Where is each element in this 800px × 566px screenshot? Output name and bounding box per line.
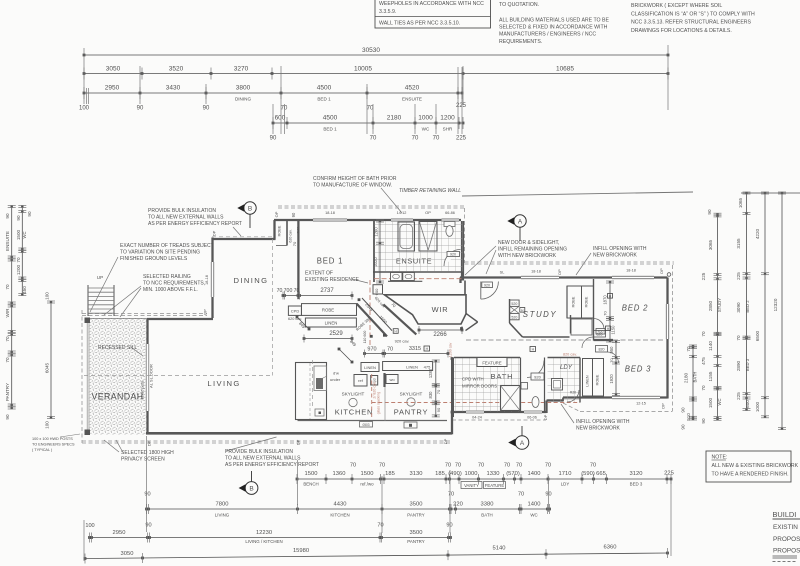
svg-text:70: 70 — [5, 357, 10, 363]
svg-text:1200 cav: 1200 cav — [449, 343, 453, 358]
svg-text:A: A — [520, 440, 525, 447]
svg-text:DP: DP — [659, 268, 664, 274]
svg-text:WEEPHOLES IN ACCORDANCE WITH N: WEEPHOLES IN ACCORDANCE WITH NCC — [379, 1, 484, 7]
svg-text:ROBE: ROBE — [322, 308, 334, 313]
svg-text:BED 1: BED 1 — [317, 257, 344, 266]
svg-text:0503: 0503 — [362, 423, 369, 427]
svg-text:DRAWINGS FOR LOCATIONS & DETAI: DRAWINGS FOR LOCATIONS & DETAILS. — [631, 28, 732, 34]
svg-text:90: 90 — [291, 212, 296, 217]
svg-text:10685: 10685 — [556, 66, 574, 73]
svg-text:TO VARIATION ON SITE PENDING: TO VARIATION ON SITE PENDING — [120, 250, 200, 256]
svg-text:15980: 15980 — [293, 548, 309, 554]
svg-text:225: 225 — [456, 136, 467, 142]
svg-text:1400: 1400 — [528, 502, 541, 508]
svg-text:70: 70 — [603, 311, 608, 316]
svg-text:2180: 2180 — [684, 372, 689, 383]
svg-text:70: 70 — [412, 136, 419, 142]
svg-text:2180: 2180 — [387, 115, 402, 122]
svg-text:INFILL REMAINING OPENING: INFILL REMAINING OPENING — [498, 247, 567, 253]
svg-text:1200: 1200 — [374, 227, 379, 237]
svg-text:STUDY: STUDY — [717, 298, 722, 312]
svg-text:R20: R20 — [570, 391, 576, 395]
svg-text:NOTE:: NOTE: — [712, 455, 728, 461]
svg-text:1500: 1500 — [708, 397, 713, 408]
svg-text:3800: 3800 — [236, 85, 251, 92]
svg-text:04-24: 04-24 — [472, 416, 482, 420]
svg-text:70: 70 — [377, 523, 383, 529]
svg-text:225: 225 — [456, 103, 467, 109]
svg-text:4500: 4500 — [323, 115, 338, 122]
svg-text:2850: 2850 — [708, 300, 713, 311]
svg-text:475: 475 — [701, 357, 706, 365]
svg-text:70: 70 — [350, 463, 356, 469]
svg-text:475: 475 — [424, 365, 431, 370]
svg-text:DP: DP — [557, 269, 562, 275]
svg-text:185: 185 — [385, 471, 395, 477]
svg-text:WC: WC — [530, 513, 537, 518]
svg-text:INFILL OPENING WITH: INFILL OPENING WITH — [593, 246, 647, 252]
svg-text:1920: 1920 — [609, 374, 614, 384]
svg-text:BATH: BATH — [693, 372, 698, 383]
svg-text:PROPOS: PROPOS — [773, 548, 800, 555]
svg-text:830: 830 — [428, 391, 433, 399]
svg-text:70: 70 — [5, 336, 10, 342]
svg-text:2529: 2529 — [329, 331, 343, 337]
svg-text:3090: 3090 — [736, 302, 741, 313]
svg-text:100: 100 — [85, 523, 94, 529]
svg-text:1360: 1360 — [333, 471, 346, 477]
svg-text:DP: DP — [543, 414, 548, 420]
svg-text:BRICKWORK ( EXCEPT WHERE SOIL: BRICKWORK ( EXCEPT WHERE SOIL — [631, 3, 722, 9]
svg-text:18-18: 18-18 — [205, 275, 209, 285]
svg-text:70: 70 — [701, 385, 706, 391]
svg-text:90: 90 — [446, 523, 452, 529]
svg-text:2890: 2890 — [736, 360, 741, 371]
svg-text:14-12: 14-12 — [397, 211, 407, 215]
svg-text:100: 100 — [79, 106, 90, 112]
svg-text:NEW DOOR & SIDELIGHT,: NEW DOOR & SIDELIGHT, — [498, 240, 559, 246]
svg-text:70: 70 — [436, 389, 441, 394]
svg-text:1870: 1870 — [603, 295, 608, 305]
svg-text:EXTENT OF: EXTENT OF — [305, 271, 333, 277]
svg-text:21-30 pass: 21-30 pass — [141, 381, 145, 400]
svg-text:LINEN: LINEN — [406, 365, 418, 370]
svg-text:DINING: DINING — [234, 276, 269, 285]
svg-text:920: 920 — [534, 375, 541, 380]
svg-text:1150: 1150 — [611, 325, 616, 335]
svg-text:520: 520 — [511, 315, 517, 319]
svg-text:185: 185 — [435, 471, 445, 477]
svg-text:3130: 3130 — [410, 471, 423, 477]
svg-text:DP: DP — [147, 440, 152, 446]
svg-text:920: 920 — [484, 284, 490, 288]
svg-text:90: 90 — [144, 492, 150, 498]
svg-text:PROVIDE BULK INSULATION: PROVIDE BULK INSULATION — [225, 449, 293, 455]
svg-text:LIVING: LIVING — [215, 513, 230, 518]
svg-text:R20: R20 — [598, 330, 604, 334]
svg-text:WC: WC — [422, 127, 430, 132]
svg-text:KITCHEN: KITCHEN — [335, 408, 374, 417]
svg-text:ENSUITE: ENSUITE — [402, 97, 422, 102]
svg-text:3050: 3050 — [121, 551, 134, 557]
svg-text:BED 1: BED 1 — [317, 97, 331, 102]
svg-text:STUDY: STUDY — [523, 310, 557, 319]
svg-text:3155: 3155 — [736, 238, 741, 249]
svg-text:100: 100 — [45, 421, 50, 429]
svg-text:BED 3: BED 3 — [745, 358, 750, 371]
svg-text:6500: 6500 — [755, 330, 760, 341]
svg-text:70: 70 — [292, 241, 297, 246]
svg-text:70: 70 — [387, 347, 393, 353]
svg-text:VERANDAH: VERANDAH — [91, 392, 143, 402]
svg-text:glass stacking: glass stacking — [376, 392, 380, 415]
svg-text:SKYLIGHT: SKYLIGHT — [342, 392, 365, 397]
svg-text:620 cav.: 620 cav. — [288, 317, 302, 321]
svg-text:90: 90 — [701, 418, 706, 424]
svg-text:VANITY: VANITY — [464, 483, 479, 488]
svg-text:under: under — [330, 377, 341, 382]
svg-text:70: 70 — [609, 358, 614, 363]
svg-text:820: 820 — [599, 348, 605, 352]
svg-text:(570): (570) — [506, 471, 520, 477]
svg-text:4520: 4520 — [405, 85, 420, 92]
svg-text:600: 600 — [374, 288, 379, 295]
svg-text:UP: UP — [97, 275, 103, 280]
svg-text:LINEN: LINEN — [364, 365, 376, 370]
svg-text:90: 90 — [5, 414, 10, 420]
svg-text:3065: 3065 — [708, 239, 713, 250]
svg-text:1330: 1330 — [487, 471, 500, 477]
svg-text:70: 70 — [5, 284, 10, 290]
svg-text:90: 90 — [270, 136, 277, 142]
svg-text:ref./wo: ref./wo — [360, 482, 374, 487]
svg-text:100 x 100 HWD POSTS: 100 x 100 HWD POSTS — [32, 437, 73, 441]
svg-text:SHR: SHR — [443, 127, 453, 132]
svg-text:4500: 4500 — [317, 85, 332, 92]
svg-text:970: 970 — [367, 347, 376, 353]
svg-text:SL: SL — [500, 271, 505, 275]
svg-text:2950: 2950 — [113, 530, 126, 536]
svg-text:70: 70 — [518, 492, 524, 498]
svg-text:LINEN: LINEN — [325, 321, 338, 326]
svg-text:90: 90 — [681, 407, 686, 413]
svg-text:DP: DP — [203, 309, 208, 315]
svg-text:110 600: 110 600 — [363, 331, 367, 344]
svg-text:90: 90 — [203, 106, 210, 112]
svg-text:3500: 3500 — [410, 502, 423, 508]
svg-text:NCC 3.3.5.13. REFER STRUCTURAL: NCC 3.3.5.13. REFER STRUCTURAL ENGINEERS — [631, 20, 752, 26]
svg-text:6360: 6360 — [604, 545, 617, 551]
svg-text:A: A — [518, 219, 523, 226]
svg-text:WC: WC — [717, 399, 722, 406]
svg-text:ALL NEW & EXISTING BRICKWORK: ALL NEW & EXISTING BRICKWORK — [712, 463, 799, 469]
svg-text:OP: OP — [274, 211, 279, 217]
svg-text:MANUFACTURERS / ENGINEERS / NC: MANUFACTURERS / ENGINEERS / NCC — [499, 32, 596, 38]
svg-text:70: 70 — [445, 463, 451, 469]
svg-text:B: B — [249, 486, 253, 493]
svg-text:SELECTED RAILING: SELECTED RAILING — [143, 274, 191, 280]
svg-text:1065: 1065 — [738, 197, 743, 208]
svg-text:12230: 12230 — [256, 530, 272, 536]
svg-text:1000: 1000 — [418, 115, 433, 122]
svg-text:2020: 2020 — [373, 257, 378, 267]
svg-text:ROBE: ROBE — [585, 296, 589, 307]
svg-text:BED 3: BED 3 — [630, 482, 643, 487]
svg-text:70: 70 — [686, 346, 691, 352]
svg-text:EXACT NUMBER OF TREADS SUBJECT: EXACT NUMBER OF TREADS SUBJECT — [120, 243, 214, 249]
svg-text:600: 600 — [745, 400, 750, 408]
svg-text:WC: WC — [22, 232, 27, 239]
svg-text:100: 100 — [45, 292, 50, 300]
svg-text:3050: 3050 — [106, 66, 121, 73]
svg-text:INFILL OPENING WITH: INFILL OPENING WITH — [576, 419, 630, 425]
svg-text:CONFIRM HEIGHT OF BATH PRIOR: CONFIRM HEIGHT OF BATH PRIOR — [313, 176, 397, 182]
svg-text:DP: DP — [661, 403, 666, 409]
svg-text:ENSUITE: ENSUITE — [5, 231, 10, 251]
svg-text:SELECTED 1800 HIGH: SELECTED 1800 HIGH — [121, 450, 174, 456]
svg-text:(590): (590) — [581, 471, 595, 477]
svg-text:665: 665 — [596, 471, 606, 477]
svg-text:1000: 1000 — [755, 401, 760, 412]
svg-text:950: 950 — [609, 346, 614, 354]
svg-text:NEW BRICKWORK: NEW BRICKWORK — [576, 426, 621, 432]
svg-text:AL SL.DOOR: AL SL.DOOR — [149, 364, 154, 388]
svg-text:70: 70 — [516, 463, 522, 469]
svg-text:3315: 3315 — [409, 346, 421, 352]
svg-text:DP: DP — [296, 439, 301, 445]
svg-text:NEW BRICKWORK: NEW BRICKWORK — [593, 253, 638, 259]
svg-text:4430: 4430 — [334, 502, 347, 508]
svg-text:520: 520 — [511, 302, 517, 306]
svg-text:ROBE: ROBE — [596, 374, 600, 385]
svg-text:RECESSED SILL: RECESSED SILL — [98, 345, 137, 351]
svg-text:70: 70 — [277, 288, 283, 294]
svg-text:ALL BUILDING MATERIALS USED AR: ALL BUILDING MATERIALS USED ARE TO BE — [499, 18, 609, 24]
svg-text:SKYLIGHT: SKYLIGHT — [400, 392, 423, 397]
svg-text:MIRROR DOORS: MIRROR DOORS — [462, 384, 497, 389]
svg-text:70: 70 — [590, 463, 596, 469]
svg-text:TO ENGINEERS SPECS: TO ENGINEERS SPECS — [32, 443, 75, 447]
svg-text:TO NCC REQUIREMENTS,: TO NCC REQUIREMENTS, — [143, 281, 205, 287]
svg-text:600: 600 — [275, 115, 286, 122]
svg-text:90: 90 — [707, 209, 712, 215]
svg-text:PANTRY: PANTRY — [5, 383, 10, 401]
svg-text:940: 940 — [296, 226, 301, 233]
svg-text:PANTRY: PANTRY — [394, 408, 429, 417]
svg-text:5140: 5140 — [493, 546, 506, 552]
svg-text:70: 70 — [504, 463, 510, 469]
svg-text:12320: 12320 — [773, 298, 778, 311]
svg-text:225: 225 — [701, 272, 706, 280]
svg-text:70: 70 — [736, 335, 741, 341]
svg-text:LIVING / KITCHEN: LIVING / KITCHEN — [245, 539, 282, 544]
svg-text:6045: 6045 — [45, 362, 50, 373]
svg-text:70: 70 — [478, 463, 484, 469]
svg-text:1500: 1500 — [361, 471, 374, 477]
svg-text:3120: 3120 — [630, 471, 643, 477]
svg-text:BED 1: BED 1 — [323, 127, 337, 132]
svg-text:TIMBER RETAINING WALL: TIMBER RETAINING WALL — [399, 188, 461, 194]
svg-text:ROBE: ROBE — [572, 296, 576, 307]
svg-text:70: 70 — [701, 331, 706, 337]
svg-text:910: 910 — [686, 413, 691, 421]
svg-text:3270: 3270 — [234, 66, 249, 73]
svg-text:EXISTING RESIDENCE: EXISTING RESIDENCE — [305, 277, 360, 283]
svg-text:70: 70 — [370, 136, 377, 142]
svg-text:LDY: LDY — [561, 482, 570, 487]
svg-text:220: 220 — [453, 502, 463, 508]
svg-text:12-15: 12-15 — [636, 402, 646, 406]
svg-text:REQUIREMENTS.: REQUIREMENTS. — [499, 39, 542, 45]
svg-text:TO MANUFACTURE OF WINDOW.: TO MANUFACTURE OF WINDOW. — [313, 183, 392, 189]
svg-text:90: 90 — [5, 213, 10, 219]
svg-text:LINEN: LINEN — [586, 375, 590, 386]
svg-text:DP: DP — [212, 230, 217, 236]
svg-text:225: 225 — [736, 392, 741, 400]
svg-text:TO QUOTATION.: TO QUOTATION. — [499, 2, 539, 8]
svg-text:3520: 3520 — [169, 66, 184, 73]
svg-text:FEATURE: FEATURE — [482, 361, 501, 366]
svg-text:PANTRY: PANTRY — [407, 513, 424, 518]
svg-text:BENCH: BENCH — [303, 482, 318, 487]
svg-text:WIR: WIR — [5, 308, 10, 318]
svg-text:B: B — [248, 206, 252, 213]
svg-text:10005: 10005 — [354, 66, 372, 73]
svg-text:EXISTIN: EXISTIN — [773, 524, 798, 531]
svg-text:CLASSIFICATION IS “A” OR “S” ): CLASSIFICATION IS “A” OR “S” ) TO COMPLY… — [631, 11, 755, 17]
svg-text:OP: OP — [425, 210, 431, 215]
svg-text:920 cav.: 920 cav. — [395, 339, 410, 344]
svg-text:PANTRY: PANTRY — [407, 539, 424, 544]
svg-text:225: 225 — [736, 272, 741, 280]
svg-text:90: 90 — [16, 215, 21, 221]
svg-text:700: 700 — [284, 288, 293, 294]
svg-text:1500: 1500 — [16, 229, 21, 240]
svg-text:MIN. 1000 ABOVE F.F.L.: MIN. 1000 ABOVE F.F.L. — [143, 287, 198, 293]
svg-text:06-06: 06-06 — [527, 416, 537, 420]
svg-text:90: 90 — [681, 424, 686, 430]
svg-text:2737: 2737 — [320, 288, 334, 294]
svg-text:3430: 3430 — [166, 85, 181, 92]
svg-text:DP: DP — [443, 438, 448, 444]
svg-text:620 cav.: 620 cav. — [289, 229, 293, 242]
svg-text:WIR: WIR — [432, 305, 449, 314]
svg-text:66-86: 66-86 — [445, 211, 455, 215]
svg-text:PRIVACY SCREEN: PRIVACY SCREEN — [121, 457, 165, 463]
svg-text:FEATURE: FEATURE — [485, 483, 504, 488]
svg-text:BUILDI: BUILDI — [773, 510, 797, 519]
svg-text:30530: 30530 — [362, 47, 380, 54]
svg-text:1200: 1200 — [16, 264, 21, 275]
svg-text:3.3.5.9.: 3.3.5.9. — [379, 9, 396, 15]
svg-text:1200: 1200 — [440, 115, 455, 122]
svg-text:AS PER ENERGY EFFICIENCY REPOR: AS PER ENERGY EFFICIENCY REPORT — [148, 221, 242, 227]
svg-text:2266: 2266 — [433, 332, 447, 338]
svg-text:70: 70 — [379, 463, 385, 469]
svg-text:4220: 4220 — [755, 228, 760, 239]
svg-text:AS PER ENERGY EFFICIENCY REPOR: AS PER ENERGY EFFICIENCY REPORT — [225, 462, 319, 468]
svg-text:70: 70 — [433, 136, 440, 142]
svg-text:ROBE: ROBE — [278, 225, 282, 236]
svg-text:18-18: 18-18 — [531, 270, 541, 274]
svg-text:70: 70 — [16, 257, 21, 263]
svg-text:DINING: DINING — [235, 97, 252, 102]
svg-text:PROVIDE BULK INSULATION: PROVIDE BULK INSULATION — [148, 208, 216, 214]
svg-text:820 cav.: 820 cav. — [563, 353, 577, 357]
svg-text:70: 70 — [448, 492, 454, 498]
svg-text:3380: 3380 — [481, 502, 494, 508]
svg-text:450: 450 — [22, 286, 27, 294]
svg-text:70: 70 — [545, 463, 551, 469]
svg-text:3500: 3500 — [410, 530, 423, 536]
svg-text:CPD WITH: CPD WITH — [462, 377, 484, 382]
svg-text:TO HAVE A RENDERED FINISH.: TO HAVE A RENDERED FINISH. — [712, 472, 789, 478]
svg-text:1280: 1280 — [428, 368, 433, 378]
svg-text:90: 90 — [436, 407, 441, 412]
svg-text:BED 3: BED 3 — [625, 365, 652, 374]
svg-text:90: 90 — [137, 106, 144, 112]
svg-text:TO ALL NEW EXTERNAL WALLS: TO ALL NEW EXTERNAL WALLS — [148, 215, 224, 221]
svg-text:WITH NEW BRICKWORK: WITH NEW BRICKWORK — [498, 253, 557, 259]
svg-text:225: 225 — [664, 471, 674, 477]
svg-text:( TYPICAL ): ( TYPICAL ) — [32, 448, 53, 452]
svg-text:90: 90 — [27, 211, 32, 217]
svg-text:LIVING: LIVING — [207, 379, 240, 388]
svg-text:wo: wo — [389, 377, 395, 382]
svg-text:18-18: 18-18 — [325, 211, 335, 215]
svg-text:1000: 1000 — [465, 471, 478, 477]
svg-text:FINISHED GROUND LEVELS: FINISHED GROUND LEVELS — [120, 256, 188, 262]
svg-text:70: 70 — [294, 288, 300, 294]
svg-text:1710: 1710 — [559, 471, 572, 477]
svg-text:18-18: 18-18 — [626, 269, 636, 273]
svg-text:2950: 2950 — [105, 85, 120, 92]
svg-text:920: 920 — [450, 253, 456, 257]
svg-text:7800: 7800 — [216, 502, 229, 508]
svg-text:TO ALL NEW EXTERNAL WALLS: TO ALL NEW EXTERNAL WALLS — [225, 456, 301, 462]
svg-text:BATH: BATH — [481, 513, 492, 518]
svg-text:70: 70 — [455, 463, 461, 469]
svg-text:1500: 1500 — [305, 471, 318, 477]
svg-text:BED 2: BED 2 — [745, 300, 750, 313]
svg-text:BED 2: BED 2 — [622, 304, 649, 313]
svg-text:PROPOS: PROPOS — [773, 536, 800, 543]
svg-text:KITCHEN: KITCHEN — [330, 513, 349, 518]
svg-text:CPD: CPD — [291, 309, 300, 314]
svg-text:1400: 1400 — [528, 471, 541, 477]
svg-text:SELECTED & FIXED IN ACCORDANCE: SELECTED & FIXED IN ACCORDANCE WITH — [499, 25, 608, 31]
svg-text:1140: 1140 — [708, 341, 713, 351]
svg-text:d'w: d'w — [333, 371, 339, 376]
svg-text:WALL TIES AS PER NCC 3.3.5.10.: WALL TIES AS PER NCC 3.3.5.10. — [379, 21, 460, 27]
svg-text:1155: 1155 — [708, 371, 713, 381]
